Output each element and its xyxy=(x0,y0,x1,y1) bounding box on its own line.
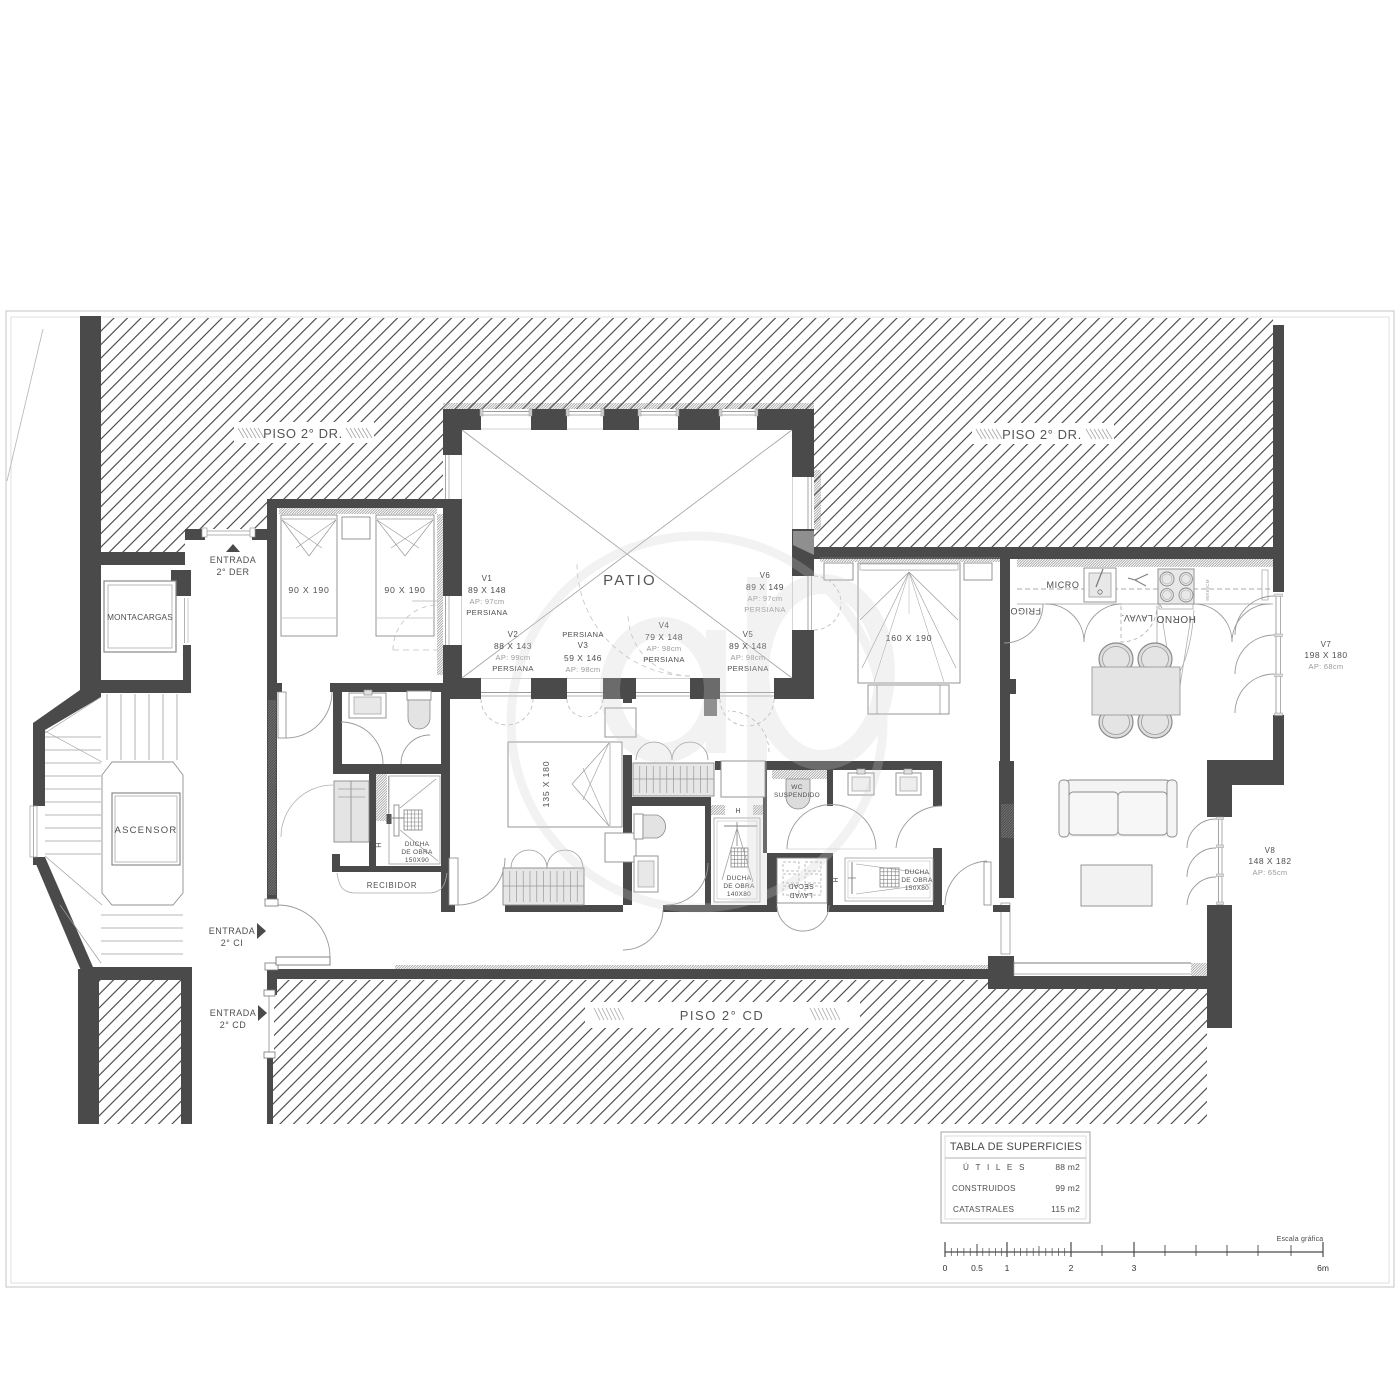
svg-text:V1: V1 xyxy=(482,574,493,583)
svg-text:LAVAD: LAVAD xyxy=(789,891,812,898)
svg-text:90X60CM: 90X60CM xyxy=(1205,579,1210,600)
svg-text:PISO 2° DR.: PISO 2° DR. xyxy=(263,426,343,441)
svg-text:LAVAV.: LAVAV. xyxy=(1121,613,1153,623)
svg-text:WC: WC xyxy=(791,784,802,791)
svg-text:AP: 68cm: AP: 68cm xyxy=(1309,662,1344,671)
svg-text:ASCENSOR: ASCENSOR xyxy=(115,825,178,836)
svg-text:SUSPENDIDO: SUSPENDIDO xyxy=(774,792,820,799)
svg-text:PATIO: PATIO xyxy=(603,572,657,589)
svg-text:V2: V2 xyxy=(508,630,519,639)
svg-text:CONSTRUIDOS: CONSTRUIDOS xyxy=(952,1184,1016,1193)
svg-text:2° CD: 2° CD xyxy=(220,1020,247,1030)
svg-text:90 X 190: 90 X 190 xyxy=(384,585,425,595)
svg-text:DE OBRA: DE OBRA xyxy=(901,877,933,884)
svg-text:PERSIANA: PERSIANA xyxy=(643,655,685,664)
svg-text:H: H xyxy=(833,877,840,882)
svg-text:88 m2: 88 m2 xyxy=(1055,1162,1080,1172)
svg-text:150X80: 150X80 xyxy=(905,885,929,892)
svg-text:90 X 190: 90 X 190 xyxy=(288,585,329,595)
svg-text:CATASTRALES: CATASTRALES xyxy=(953,1205,1014,1214)
svg-text:FRIGO.: FRIGO. xyxy=(1007,606,1041,616)
svg-text:115 m2: 115 m2 xyxy=(1051,1204,1080,1214)
svg-text:V8: V8 xyxy=(1265,846,1276,855)
svg-text:2: 2 xyxy=(1069,1263,1074,1273)
svg-text:HORNO: HORNO xyxy=(1156,613,1196,624)
svg-text:MICRO: MICRO xyxy=(1047,580,1080,590)
svg-text:PISO 2° CD: PISO 2° CD xyxy=(680,1008,765,1023)
svg-text:RECIBIDOR: RECIBIDOR xyxy=(367,881,418,890)
svg-text:135 X 180: 135 X 180 xyxy=(541,761,551,808)
svg-text:89 X 148: 89 X 148 xyxy=(468,585,506,595)
svg-text:PISO 2° DR.: PISO 2° DR. xyxy=(1002,427,1082,442)
svg-text:AP: 98cm: AP: 98cm xyxy=(647,644,682,653)
svg-text:TABLA DE SUPERFICIES: TABLA DE SUPERFICIES xyxy=(950,1141,1082,1153)
svg-text:AP: 97cm: AP: 97cm xyxy=(470,597,505,606)
svg-text:AP: 65cm: AP: 65cm xyxy=(1253,868,1288,877)
svg-text:150X90: 150X90 xyxy=(405,857,429,864)
svg-text:V3: V3 xyxy=(578,641,589,650)
svg-text:PERSIANA: PERSIANA xyxy=(492,664,534,673)
svg-text:DUCHA: DUCHA xyxy=(905,869,930,876)
svg-text:Escala gráfica: Escala gráfica xyxy=(1277,1236,1324,1243)
svg-text:DE OBRA: DE OBRA xyxy=(401,849,433,856)
svg-text:148 X 182: 148 X 182 xyxy=(1248,856,1291,866)
svg-text:DUCHA: DUCHA xyxy=(405,841,430,848)
svg-text:3: 3 xyxy=(1132,1263,1137,1273)
svg-text:AP: 98cm: AP: 98cm xyxy=(566,665,601,674)
svg-text:198 X 180: 198 X 180 xyxy=(1304,650,1347,660)
svg-text:ENTRADA: ENTRADA xyxy=(209,926,256,936)
svg-text:H: H xyxy=(735,808,740,815)
svg-text:ENTRADA: ENTRADA xyxy=(210,1008,257,1018)
svg-text:ENTRADA: ENTRADA xyxy=(210,555,257,565)
svg-text:H: H xyxy=(374,842,383,847)
svg-text:99 m2: 99 m2 xyxy=(1055,1183,1080,1193)
svg-text:PERSIANA: PERSIANA xyxy=(562,630,604,639)
svg-text:59 X 146: 59 X 146 xyxy=(564,653,602,663)
svg-text:Ú T I L E S: Ú T I L E S xyxy=(963,1162,1027,1172)
svg-text:160 X 190: 160 X 190 xyxy=(886,633,933,643)
svg-text:2° DER: 2° DER xyxy=(216,567,249,577)
svg-text:0: 0 xyxy=(943,1263,948,1273)
svg-text:1: 1 xyxy=(1005,1263,1010,1273)
svg-text:6m: 6m xyxy=(1317,1263,1329,1273)
svg-text:MONTACARGAS: MONTACARGAS xyxy=(107,613,173,622)
svg-text:0.5: 0.5 xyxy=(971,1263,983,1273)
svg-text:PERSIANA: PERSIANA xyxy=(466,608,508,617)
svg-text:2° CI: 2° CI xyxy=(221,938,244,948)
svg-text:V7: V7 xyxy=(1321,640,1332,649)
